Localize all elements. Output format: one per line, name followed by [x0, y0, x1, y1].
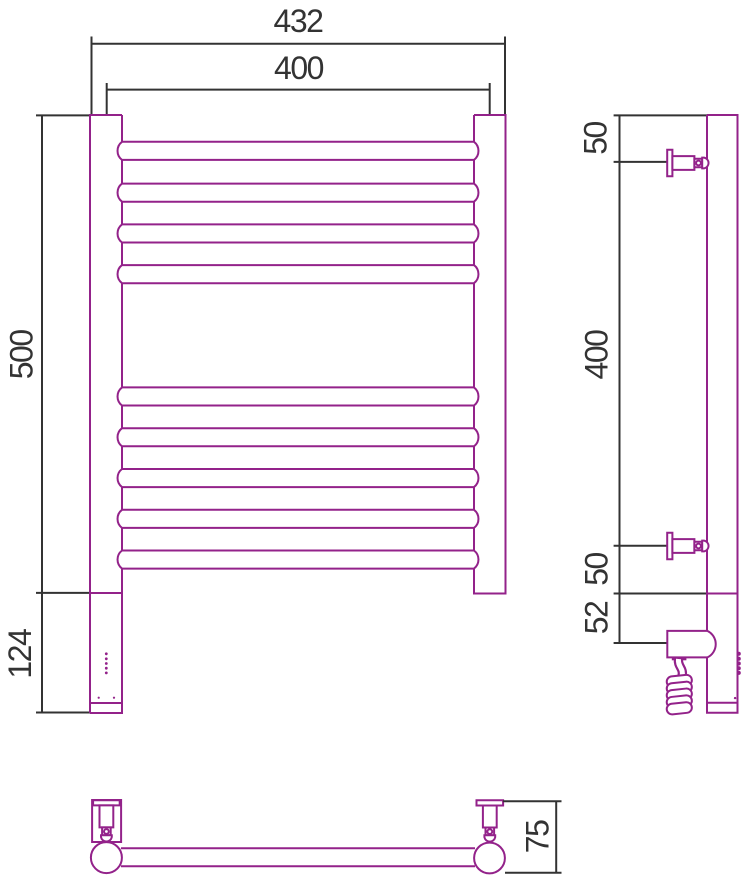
- svg-text:50: 50: [577, 122, 613, 155]
- svg-text:50: 50: [578, 553, 614, 586]
- svg-text:500: 500: [3, 330, 39, 380]
- svg-text:124: 124: [2, 629, 38, 679]
- svg-text:75: 75: [519, 820, 555, 853]
- svg-text:52: 52: [578, 601, 614, 634]
- svg-text:400: 400: [578, 330, 614, 380]
- svg-text:432: 432: [274, 3, 324, 39]
- svg-text:400: 400: [274, 50, 324, 86]
